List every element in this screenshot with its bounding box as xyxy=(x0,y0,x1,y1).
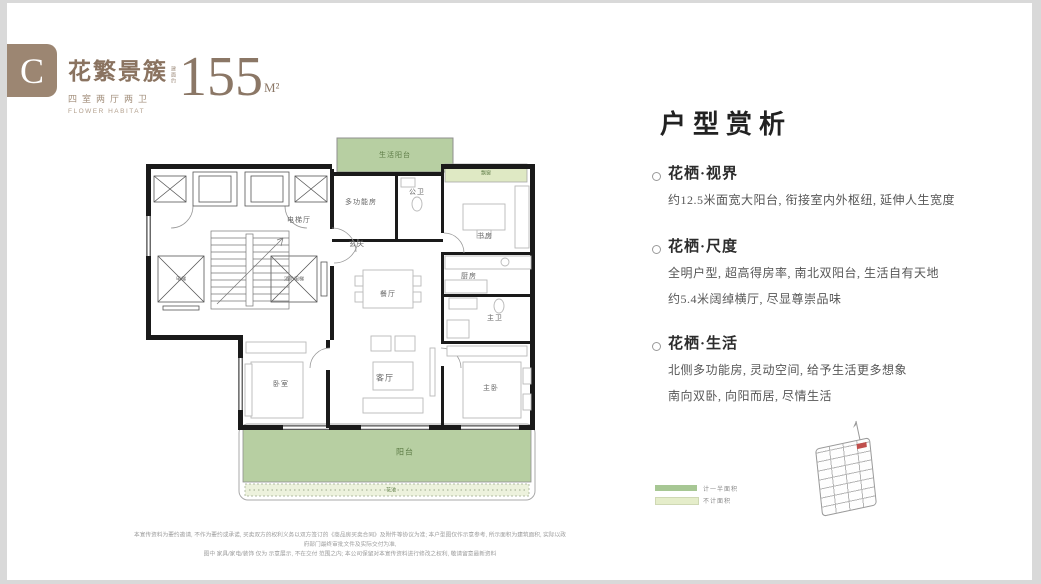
section-text-life-2: 南向双卧, 向阳而居, 尽情生活 xyxy=(668,387,832,404)
analysis-title: 户型赏析 xyxy=(660,104,792,141)
legend-label-no-area: 不计面积 xyxy=(703,496,731,505)
section-text-scale-2: 约5.4米阔绰横厅, 尽显尊崇品味 xyxy=(668,290,842,307)
area-block: 建面约 155 M² xyxy=(170,52,279,102)
area-value: 155 xyxy=(179,52,263,102)
section-heading-vision: 花栖·视界 xyxy=(668,162,738,183)
unit-type-badge: C xyxy=(7,44,57,97)
minimap-highlight-block xyxy=(857,442,867,449)
section-text-scale-1: 全明户型, 超高得房率, 南北双阳台, 生活自有天地 xyxy=(668,264,939,281)
floorplan: 生活阳台 飘窗 多功能房 公卫 书房 电梯厅 玄关 餐厅 厨房 主卫 客厅 卧室… xyxy=(133,136,643,508)
room-label-elevator: 电梯 xyxy=(176,276,186,283)
section-bullet-2 xyxy=(652,245,661,254)
room-label-multi-room: 多功能房 xyxy=(345,197,377,207)
disclaimer-text: 本宣传资料为要约邀请, 不作为要约或承诺, 买卖双方的权利义务以双方签订的《商品… xyxy=(132,531,569,560)
room-label-fire-elevator: 消防电梯 xyxy=(284,276,304,283)
layout-subtitle-en: FLOWER HABITAT xyxy=(68,108,218,115)
area-prefix-label: 建面约 xyxy=(170,66,177,92)
page-frame-bottom xyxy=(0,580,1041,584)
site-minimap xyxy=(815,437,877,517)
section-bullet-1 xyxy=(652,172,661,181)
room-label-study: 书房 xyxy=(477,231,493,241)
room-label-foyer: 玄关 xyxy=(349,239,365,249)
area-unit-label: M² xyxy=(264,80,279,96)
legend-swatch-no-area xyxy=(655,497,699,505)
room-label-public-bath: 公卫 xyxy=(409,187,425,197)
room-label-dining: 餐厅 xyxy=(380,289,396,299)
page-frame-left xyxy=(0,0,7,584)
room-label-life-balcony: 生活阳台 xyxy=(379,150,411,160)
room-label-elevator-hall: 电梯厅 xyxy=(287,215,311,225)
room-label-balcony: 阳台 xyxy=(396,447,414,458)
room-label-master-bedroom: 主卧 xyxy=(483,383,499,393)
room-label-bay-window: 飘窗 xyxy=(481,170,491,177)
page-frame-right xyxy=(1032,0,1041,584)
section-text-life-1: 北侧多功能房, 灵动空间, 给予生活更多想象 xyxy=(668,361,907,378)
section-heading-life: 花栖·生活 xyxy=(668,332,738,353)
legend-label-half-area: 计一半面积 xyxy=(703,484,738,493)
room-label-living: 客厅 xyxy=(376,373,394,384)
room-label-master-bath: 主卫 xyxy=(487,313,503,323)
room-label-bedroom: 卧室 xyxy=(273,379,289,389)
disclaimer-line-1: 本宣传资料为要约邀请, 不作为要约或承诺, 买卖双方的权利义务以双方签订的《商品… xyxy=(132,531,569,550)
disclaimer-line-2: 图中 家具/家电/装饰 仅为 示意展示, 不在交付 范围之内; 本公司保留对本宣… xyxy=(132,550,569,560)
section-text-vision-1: 约12.5米面宽大阳台, 衔接室内外枢纽, 延伸人生宽度 xyxy=(668,191,955,208)
room-label-planter: 花池 xyxy=(386,487,396,494)
floorplan-drawing xyxy=(133,136,643,508)
legend-swatch-half-area xyxy=(655,485,697,491)
room-label-kitchen: 厨房 xyxy=(461,271,477,281)
section-heading-scale: 花栖·尺度 xyxy=(668,235,738,256)
section-bullet-3 xyxy=(652,342,661,351)
page-frame-top xyxy=(0,0,1041,3)
